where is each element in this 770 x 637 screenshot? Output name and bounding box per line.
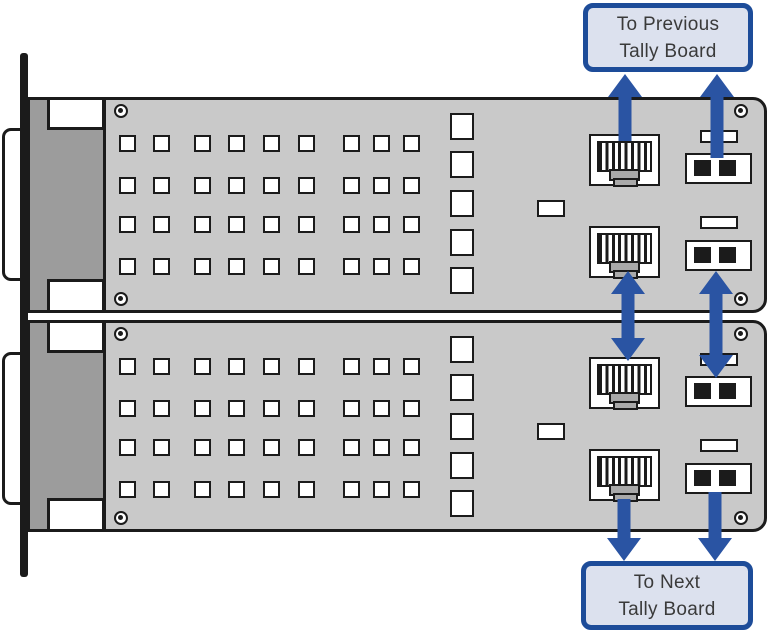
component-slot [450,151,474,178]
component-square [263,439,280,456]
jumper-block-top [685,376,752,407]
rj45-jack-bottom [589,449,660,501]
component-square [228,481,245,498]
rj45-latch-stub [613,493,638,502]
component-square [373,216,390,233]
component-square [298,400,315,417]
component-square [153,216,170,233]
component-square [153,258,170,275]
label-line-2: Tally Board [586,596,748,623]
component-square [119,135,136,152]
component-square [194,481,211,498]
jumper-block-bottom [685,240,752,271]
component-slot [450,413,474,440]
component-square [403,439,420,456]
screw [734,292,748,306]
rj45-latch-stub [613,270,638,279]
component-square [194,439,211,456]
component-chip [537,200,565,217]
component-slot [450,490,474,517]
rj45-pins-icon [597,233,652,264]
component-slot [450,374,474,401]
component-square [263,216,280,233]
component-square [403,135,420,152]
component-square [298,135,315,152]
jumper-pin [694,247,711,263]
component-square [298,481,315,498]
component-square [373,439,390,456]
screw [114,292,128,306]
to-next-tally-board-label: To Next Tally Board [581,561,753,630]
label-line-1: To Previous [588,11,748,38]
component-square [119,258,136,275]
screw [734,104,748,118]
edge-connector-body [27,97,106,313]
component-slot [450,113,474,140]
component-square [194,216,211,233]
component-square [373,358,390,375]
component-square [194,400,211,417]
component-square [228,400,245,417]
component-square [153,439,170,456]
component-chip [537,423,565,440]
component-square [263,258,280,275]
rj45-jack-bottom [589,226,660,278]
component-square [298,216,315,233]
connector-notch-bottom [47,279,105,313]
jumper-block-top [685,153,752,184]
screw [734,327,748,341]
component-square [119,216,136,233]
component-square [373,135,390,152]
connector-notch-top [47,320,105,353]
component-square [403,177,420,194]
tally-board-2 [27,320,767,532]
component-square [153,358,170,375]
component-square [194,177,211,194]
component-slot [450,452,474,479]
component-square [373,177,390,194]
jumper-pad-top [700,130,738,143]
rj45-latch-stub [613,401,638,410]
component-square [228,135,245,152]
screw [734,511,748,525]
jumper-pad-top [700,353,738,366]
component-slot [450,336,474,363]
component-square [403,216,420,233]
jumper-pin [719,470,736,486]
component-square [298,258,315,275]
component-square [298,439,315,456]
screw [114,104,128,118]
rj45-pins-icon [597,141,652,172]
component-square [343,216,360,233]
component-square [343,358,360,375]
component-square [263,400,280,417]
jumper-pin [694,470,711,486]
component-square [119,177,136,194]
component-square [373,400,390,417]
component-square [298,177,315,194]
component-square [343,481,360,498]
edge-connector-body [27,320,106,532]
rj45-jack-top [589,134,660,186]
jumper-pin [719,160,736,176]
label-line-2: Tally Board [588,38,748,65]
component-square [228,358,245,375]
component-square [119,439,136,456]
screw [114,327,128,341]
rj45-pins-icon [597,456,652,487]
component-square [228,258,245,275]
component-square [403,358,420,375]
component-square [373,258,390,275]
component-square [194,358,211,375]
component-square [153,400,170,417]
component-square [119,358,136,375]
component-square [153,135,170,152]
component-square [263,135,280,152]
component-slot [450,190,474,217]
component-square [343,400,360,417]
jumper-block-bottom [685,463,752,494]
component-slot [450,267,474,294]
rj45-jack-top [589,357,660,409]
component-square [153,177,170,194]
component-square [403,258,420,275]
component-square [403,481,420,498]
component-square [343,258,360,275]
jumper-pin [694,160,711,176]
jumper-pad-bottom [700,439,738,452]
tally-board-1 [27,97,767,313]
jumper-pad-bottom [700,216,738,229]
component-square [343,439,360,456]
component-square [263,358,280,375]
jumper-pin [694,383,711,399]
component-square [194,258,211,275]
component-square [343,177,360,194]
jumper-pin [719,383,736,399]
diagram-canvas: To Previous Tally Board To Next Tally Bo… [0,0,770,637]
component-square [228,177,245,194]
component-square [119,481,136,498]
screw [114,511,128,525]
rj45-latch-stub [613,178,638,187]
component-square [298,358,315,375]
to-previous-tally-board-label: To Previous Tally Board [583,3,753,72]
component-square [373,481,390,498]
component-square [194,135,211,152]
component-square [153,481,170,498]
component-slot [450,229,474,256]
connector-notch-top [47,97,105,130]
component-square [119,400,136,417]
component-square [343,135,360,152]
rj45-pins-icon [597,364,652,395]
component-square [228,439,245,456]
component-square [263,481,280,498]
label-line-1: To Next [586,569,748,596]
component-square [403,400,420,417]
connection-arrows [0,0,770,637]
component-square [228,216,245,233]
component-square [263,177,280,194]
connector-notch-bottom [47,498,105,532]
jumper-pin [719,247,736,263]
